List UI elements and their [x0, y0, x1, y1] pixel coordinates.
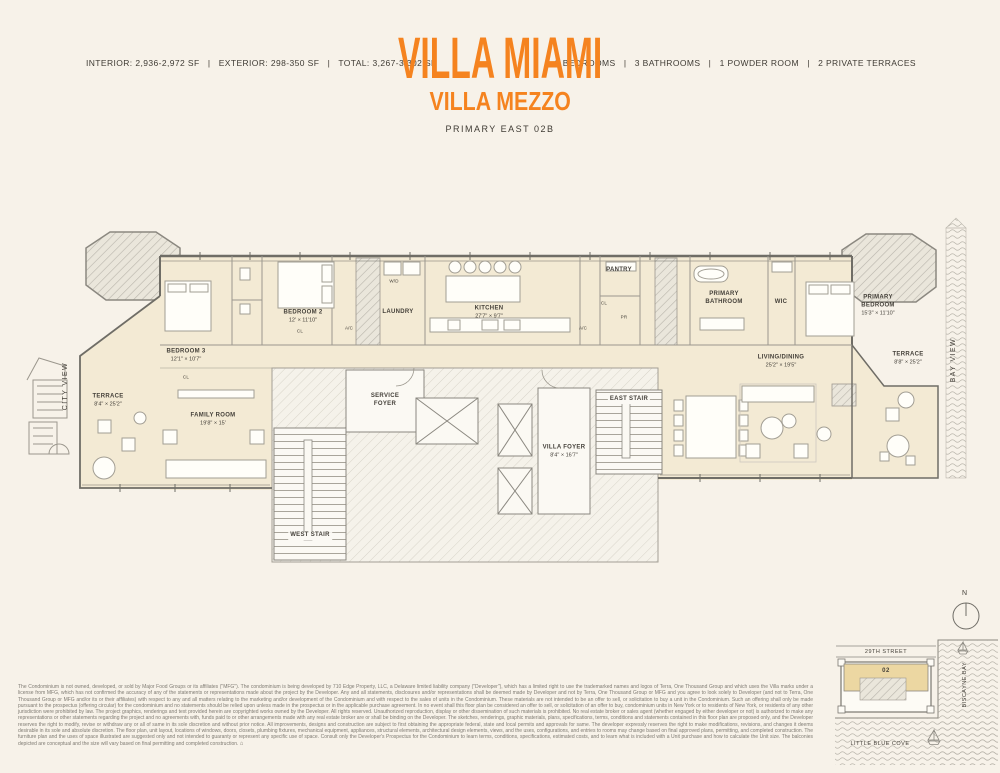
room-label-wic: WIC — [775, 299, 788, 307]
title-text: VILLA MIAMI — [398, 30, 602, 88]
subtitle-text: VILLA MEZZO — [429, 88, 570, 114]
room-name: TERRACE — [892, 352, 923, 360]
room-label-west-stair: WEST STAIR — [288, 532, 332, 540]
room-name: LAUNDRY — [382, 309, 413, 317]
label-ac-east: A/C — [579, 326, 587, 331]
label-cl-hall: CL — [601, 301, 607, 306]
room-dims: 25'2" × 19'5" — [758, 362, 805, 369]
disclaimer-text: The Condominium is not owned, developed,… — [18, 684, 813, 747]
room-label-laundry: LAUNDRY — [382, 309, 413, 317]
page-subtitle: VILLA MEZZO — [0, 88, 1000, 115]
room-name: FAMILY ROOM — [191, 413, 236, 421]
label-powder-room: PR — [621, 315, 628, 320]
room-dims: 12' × 11'10" — [283, 317, 322, 324]
room-label-east-stair: EAST STAIR — [608, 396, 650, 404]
room-label-primary-bedroom: PRIMARY BEDROOM 15'3" × 11'10" — [855, 295, 901, 318]
room-name: VILLA FOYER — [541, 445, 587, 453]
primary-bed-icon — [806, 282, 854, 336]
room-dims: 12'1" × 10'7" — [166, 356, 205, 363]
room-name: SERVICE FOYER — [362, 393, 408, 409]
room-label-villa-foyer: VILLA FOYER 8'4" × 16'7" — [541, 445, 587, 460]
room-label-kitchen: KITCHEN 27'7" × 9'7" — [475, 306, 504, 321]
bed-3-icon — [165, 281, 211, 331]
room-label-primary-bathroom: PRIMARY BATHROOM — [701, 291, 747, 307]
room-name: PANTRY — [606, 267, 632, 275]
room-name: EAST STAIR — [608, 396, 650, 404]
city-view-label: CITY VIEW — [62, 362, 69, 410]
chase-shape-2 — [655, 258, 677, 345]
label-cl-bedroom2: CL — [297, 329, 303, 334]
equal-housing-icon: ⌂ — [240, 741, 244, 747]
north-label: N — [962, 590, 967, 597]
room-label-terrace-west: TERRACE 8'4" × 25'2" — [92, 394, 123, 409]
floorplan-page: INTERIOR: 2,936-2,972 SF | EXTERIOR: 298… — [0, 0, 1000, 773]
room-dims: 19'8" × 15' — [191, 420, 236, 427]
room-dims: 8'4" × 16'7" — [541, 452, 587, 459]
little-blue-cove-label: LITTLE BLUE COVE — [850, 741, 909, 747]
room-dims: 27'7" × 9'7" — [475, 313, 504, 320]
room-label-bedroom3: BEDROOM 3 12'1" × 10'7" — [166, 349, 205, 364]
kitchen-island-icon — [446, 261, 521, 302]
room-label-pantry: PANTRY — [606, 267, 632, 275]
room-name: LIVING/DINING — [758, 355, 805, 363]
room-name: BEDROOM 2 — [283, 310, 322, 318]
room-name: BEDROOM 3 — [166, 349, 205, 357]
label-wd: W/D — [389, 279, 398, 284]
room-label-terrace-east: TERRACE 8'8" × 25'2" — [892, 352, 923, 367]
room-name: KITCHEN — [475, 306, 504, 314]
room-label-bedroom2: BEDROOM 2 12' × 11'10" — [283, 310, 322, 325]
page-title: VILLA MIAMI — [0, 30, 1000, 88]
bed-2-icon — [278, 262, 334, 308]
room-name: WIC — [775, 299, 788, 307]
legal-disclaimer: The Condominium is not owned, developed,… — [18, 684, 813, 747]
room-label-family-room: FAMILY ROOM 19'8" × 15' — [191, 413, 236, 428]
room-dims: 8'4" × 25'2" — [92, 401, 123, 408]
chase-shape — [356, 258, 380, 345]
room-name: PRIMARY BATHROOM — [701, 291, 747, 307]
room-label-living-dining: LIVING/DINING 25'2" × 19'5" — [758, 355, 805, 370]
room-name: PRIMARY BEDROOM — [855, 295, 901, 311]
label-cl-bedroom3: CL — [183, 375, 189, 380]
turret-east-shape — [842, 234, 936, 302]
label-ac-west: A/C — [345, 326, 353, 331]
room-dims: 15'3" × 11'10" — [855, 310, 901, 317]
bay-view-label: BAY VIEW — [950, 338, 957, 382]
street-label: 29TH STREET — [865, 649, 907, 655]
biscayne-bay-label: BISCAYNE BAY — [962, 662, 968, 708]
room-name: TERRACE — [92, 394, 123, 402]
unit-number-label: 02 — [882, 668, 890, 674]
room-name: WEST STAIR — [288, 532, 332, 540]
room-dims: 8'8" × 25'2" — [892, 359, 923, 366]
room-label-service-foyer: SERVICE FOYER — [362, 393, 408, 409]
plan-name: PRIMARY EAST 02B — [0, 124, 1000, 134]
